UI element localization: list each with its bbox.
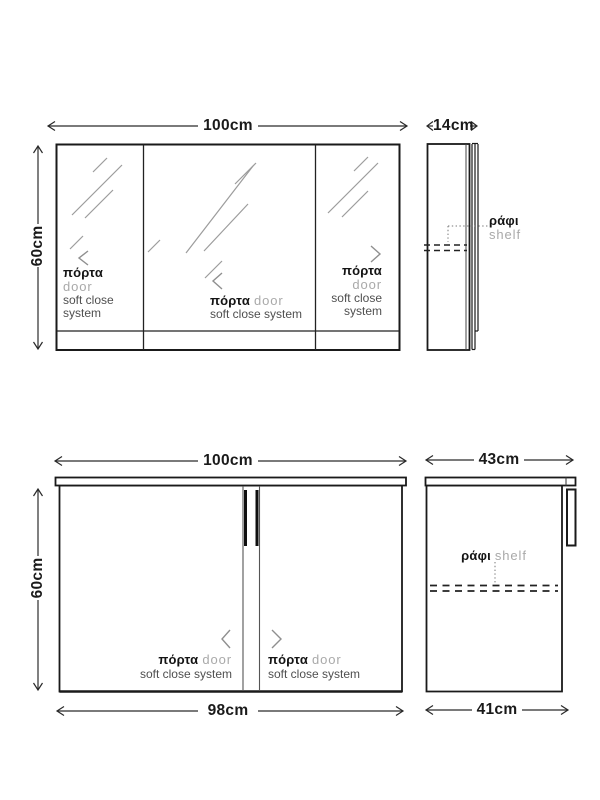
door-label-english: door [312,652,342,667]
mirror-width-value: 100cm [200,118,256,134]
door-label-greek: πόρτα [63,265,103,280]
base-cabinet-side-view [426,478,576,692]
shelf-label-english: shelf [489,227,521,242]
door-label-english: door [352,277,382,292]
mirror-cabinet-side-view [424,144,488,351]
base-depth-top-value: 43cm [477,452,521,468]
door-label-english: door [63,279,93,294]
base-shelf-label: ράφιshelf [458,547,530,565]
mirror-door-edge [472,144,478,350]
door-feature-line2: system [63,307,114,321]
door-label-greek: πόρτα [158,652,198,667]
countertop-side [426,478,576,486]
door-feature-line2: system [331,305,382,319]
mirror-shelf-label: ράφι shelf [489,214,521,241]
door-label-greek: πόρτα [268,652,308,667]
furniture-dimensions-diagram: 100cm 14cm 60cm πόρτα door soft close sy… [0,0,600,800]
door-label-english: door [202,652,232,667]
mirror-depth-value: 14cm [433,118,471,134]
countertop-front [56,478,407,486]
door-label-english: door [254,293,284,308]
base-depth-bottom-value: 41cm [475,702,519,718]
base-height-value: 60cm [30,550,46,606]
door-label-greek: πόρτα [342,263,382,278]
door-feature-line1: soft close [63,294,114,308]
base-left-door-label: πόρταdoor soft close system [140,653,232,681]
mirror-middle-door-label: πόρταdoor soft close system [210,294,302,322]
side-door-handle [567,490,576,546]
door-feature: soft close system [140,667,232,681]
base-width-bottom-value: 98cm [200,703,256,719]
mirror-height-value: 60cm [30,218,46,274]
shelf-label-english: shelf [495,548,527,563]
door-label-greek: πόρτα [210,293,250,308]
shelf-label-greek: ράφι [461,548,491,563]
door-feature-line1: soft close [331,292,382,306]
mirror-left-door-label: πόρτα door soft close system [63,266,114,321]
mirror-right-door-label: πόρτα door soft close system [331,264,382,319]
door-feature: soft close system [268,667,360,681]
door-feature: soft close system [210,308,302,322]
base-right-door-label: πόρταdoor soft close system [268,653,360,681]
base-width-top-value: 100cm [200,453,256,469]
